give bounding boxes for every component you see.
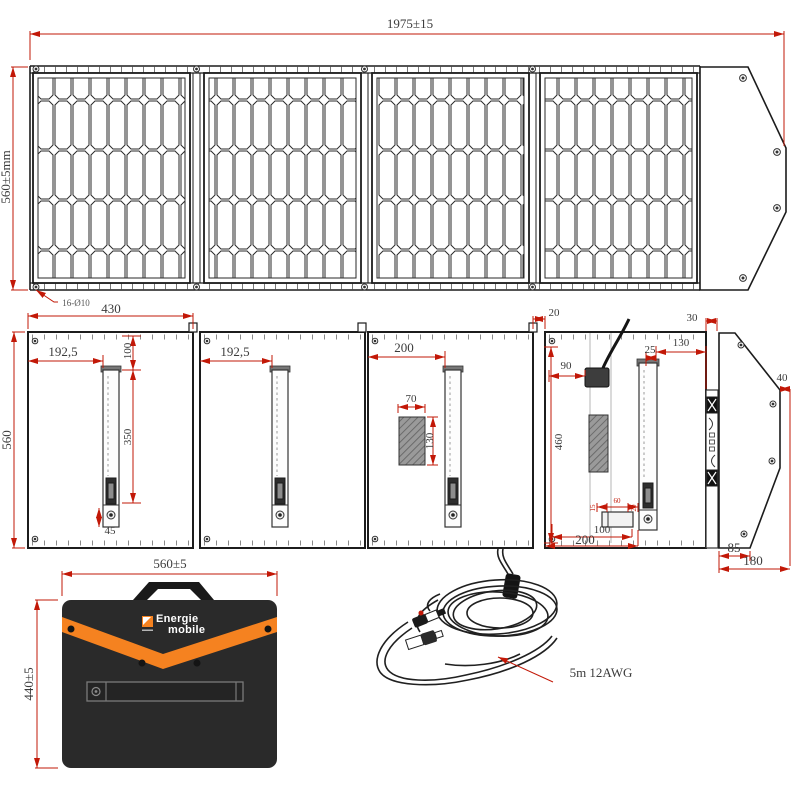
technical-drawing-canvas: 1975±15 560±5mm 16-Ø10 430 560 192,5 100… — [0, 0, 800, 800]
kickstand-leg — [270, 366, 290, 527]
connector-seal-red — [419, 611, 424, 616]
back-view-flap — [719, 333, 780, 548]
folded-bag-view — [62, 582, 277, 768]
bag-bottom-strip — [87, 682, 243, 701]
cable-coil — [435, 576, 558, 639]
kickstand-leg — [443, 366, 463, 527]
junction-box — [585, 368, 609, 387]
mc4-connector — [405, 628, 444, 651]
bottom-handle — [602, 512, 633, 527]
drawing-linework — [0, 0, 800, 800]
back-view-unfolded — [28, 319, 780, 548]
pocket-panel3 — [399, 417, 425, 465]
pocket-panel4 — [589, 415, 608, 472]
top-view-unfolded-front — [30, 66, 786, 290]
cable-drawing — [377, 549, 559, 685]
top-view-flap — [700, 67, 786, 290]
kickstand-leg — [101, 366, 121, 527]
velcro-strip — [706, 390, 718, 548]
